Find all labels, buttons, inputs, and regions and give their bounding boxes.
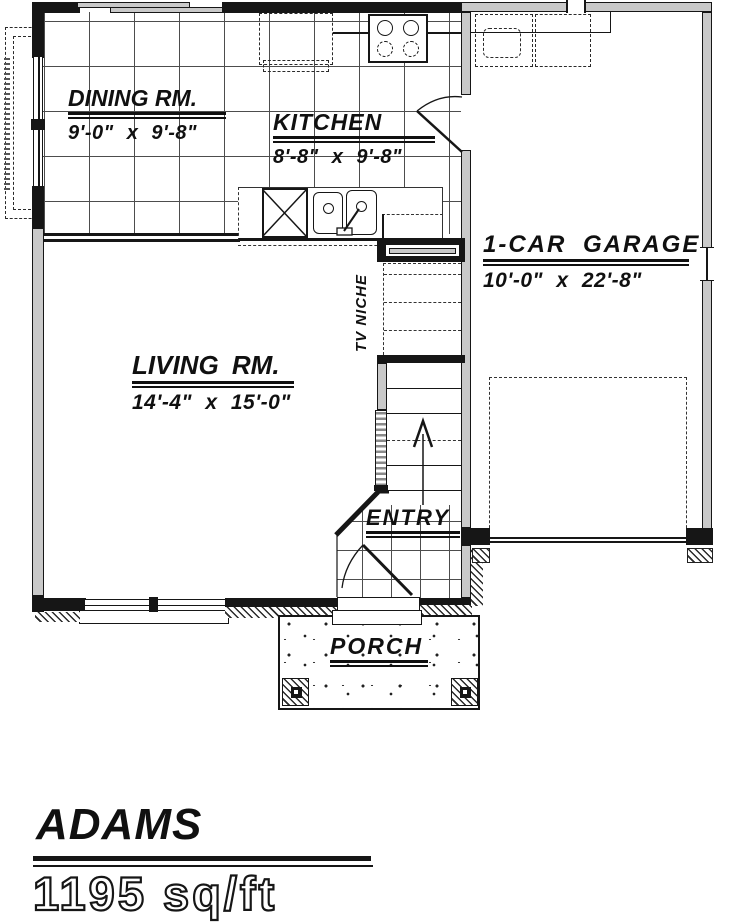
- plan-title: ADAMS: [36, 802, 202, 848]
- title-underline: [33, 856, 371, 861]
- room-dims: 9'-0" x 9'-8": [68, 123, 226, 144]
- room-label-garage: 1-CAR GARAGE 10'-0" x 22'-8": [483, 232, 689, 292]
- room-dims: 8'-8" x 9'-8": [273, 147, 435, 168]
- room-label-kitchen: KITCHEN 8'-8" x 9'-8": [273, 110, 435, 168]
- porch-label: PORCH: [330, 634, 428, 667]
- room-label-living: LIVING RM. 14'-4" x 15'-0": [132, 352, 294, 414]
- door-swing-arc: [417, 97, 462, 111]
- entry-door-leaf: [363, 545, 412, 595]
- room-name: 1-CAR GARAGE: [483, 231, 700, 258]
- tv-niche-label: TV NICHE: [354, 262, 370, 352]
- entry-door-swing-arc: [342, 545, 363, 588]
- room-dims: 10'-0" x 22'-8": [483, 270, 689, 292]
- room-name: KITCHEN: [273, 109, 382, 135]
- room-dims: 14'-4" x 15'-0": [132, 392, 294, 414]
- room-name: LIVING RM.: [132, 350, 280, 380]
- plan-area: 1195 sq/ft: [33, 866, 277, 921]
- floor-plan-sheet: DINING RM. 9'-0" x 9'-8" KITCHEN 8'-8" x…: [0, 0, 741, 924]
- entry-label: ENTRY: [366, 506, 460, 538]
- room-name: DINING RM.: [68, 85, 197, 111]
- room-label-dining: DINING RM. 9'-0" x 9'-8": [68, 86, 226, 144]
